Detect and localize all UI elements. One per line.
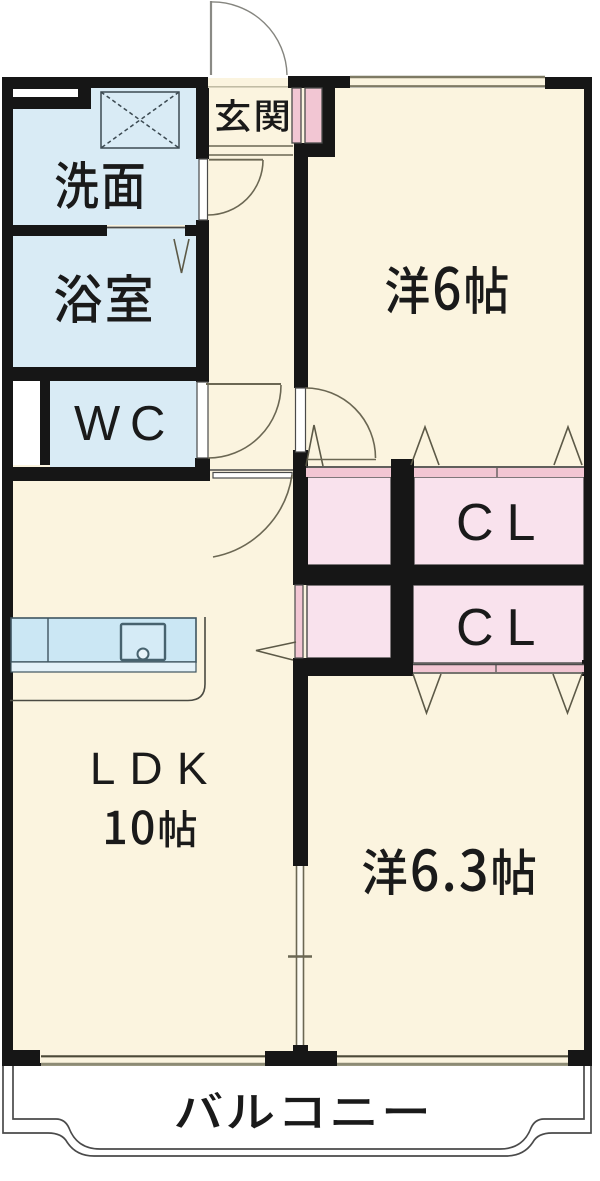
svg-text:CL: CL [456, 599, 548, 657]
svg-text:LDK: LDK [90, 743, 222, 794]
svg-text:CL: CL [456, 494, 548, 552]
svg-text:WC: WC [74, 397, 175, 451]
